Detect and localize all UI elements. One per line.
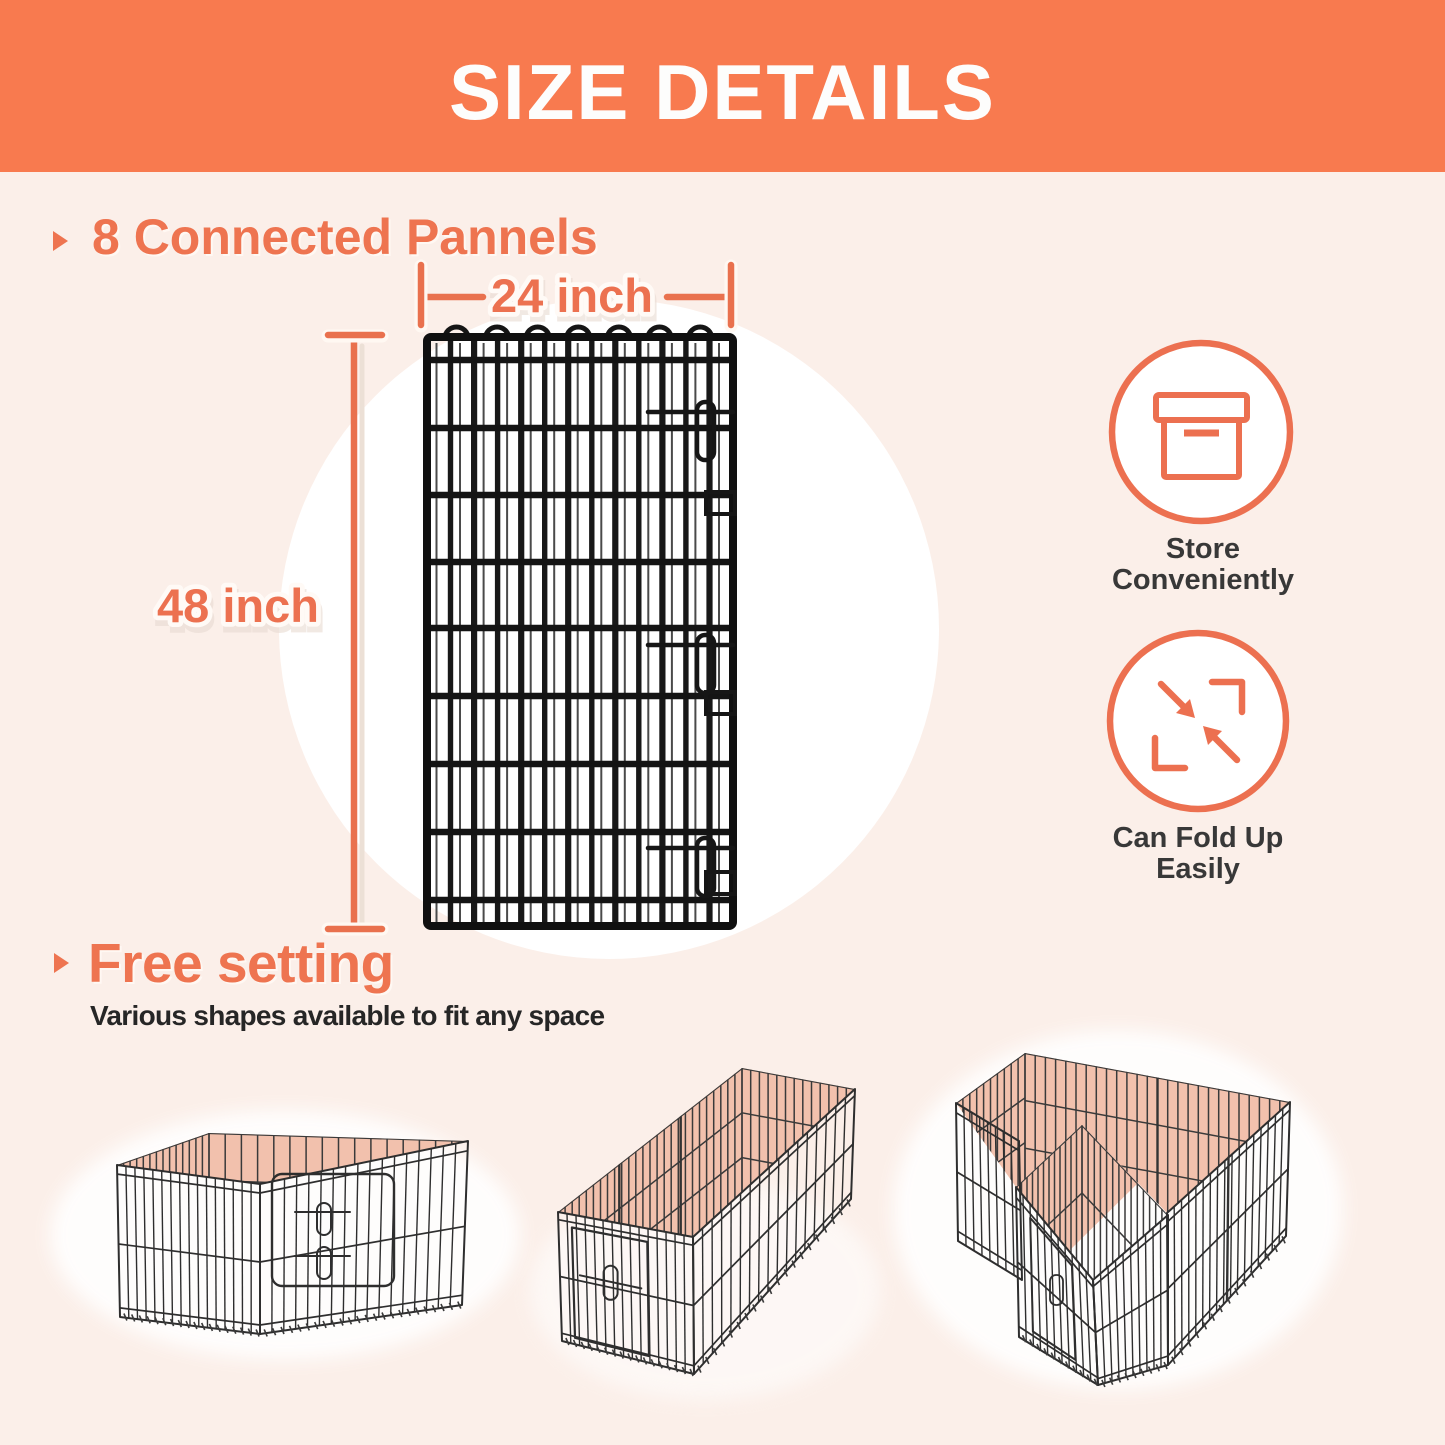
svg-text:24 inch: 24 inch xyxy=(491,269,653,322)
svg-text:48 inch: 48 inch xyxy=(157,579,319,632)
